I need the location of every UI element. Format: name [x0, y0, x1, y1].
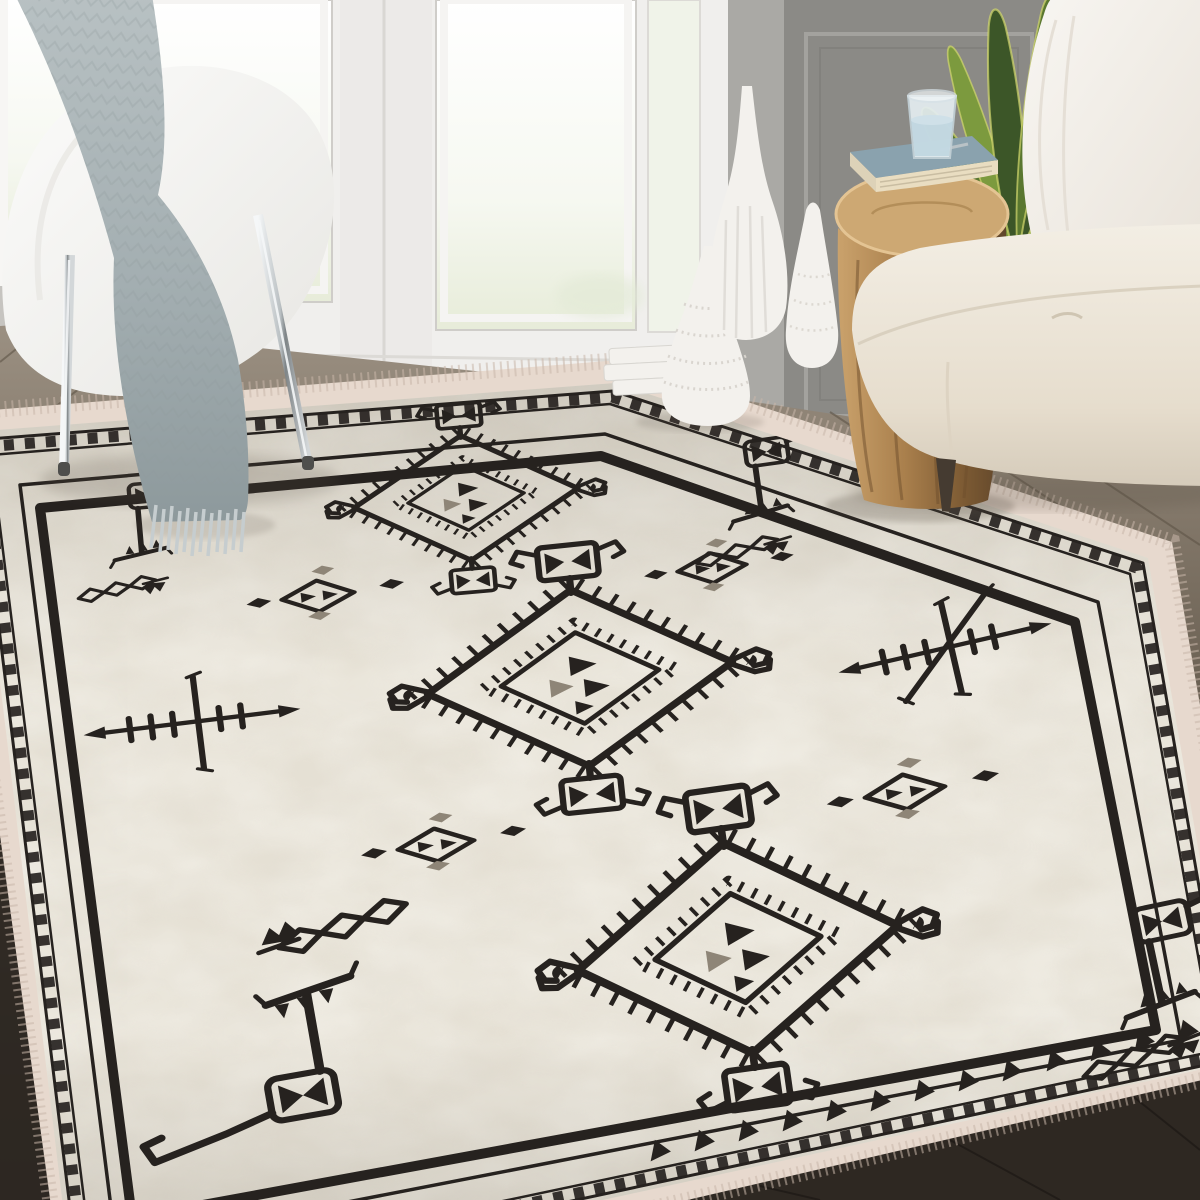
chair-foot-cap [58, 462, 70, 476]
door-stile [340, 0, 432, 398]
chair-foot-cap [302, 456, 314, 470]
water [911, 120, 953, 156]
scene-photo: Bright living room: white French doors, … [0, 0, 1200, 1200]
living-room-scene [0, 0, 1200, 1200]
water-glass [908, 90, 956, 158]
door-sidelight [648, 0, 700, 332]
